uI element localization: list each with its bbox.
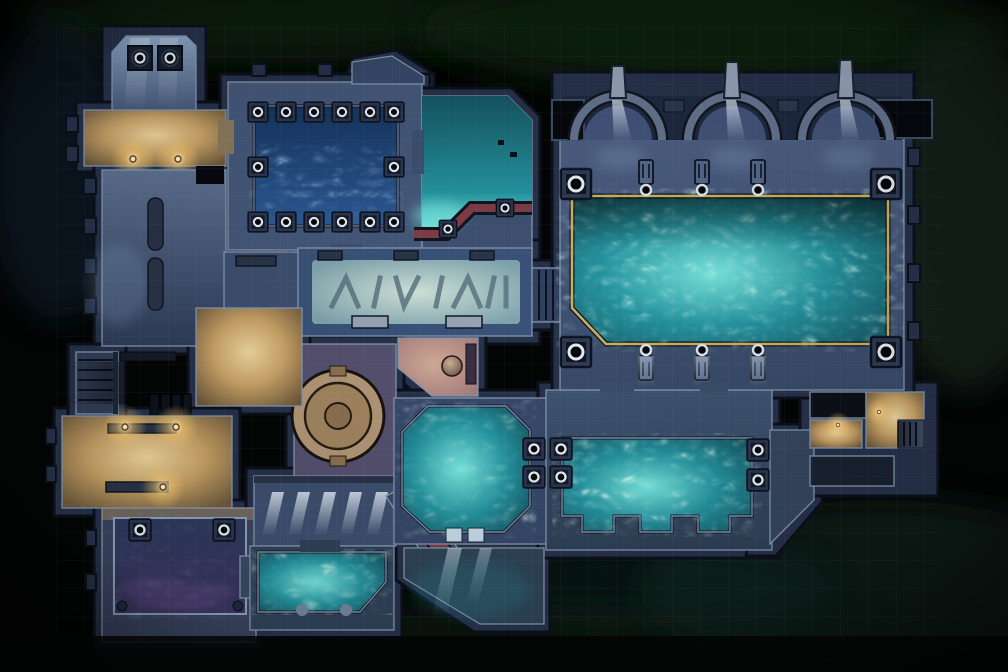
battle-map-canvas [0,0,1008,672]
bottom-shadow [0,636,1008,672]
battle-map [0,0,1008,672]
vignette [0,0,1008,672]
